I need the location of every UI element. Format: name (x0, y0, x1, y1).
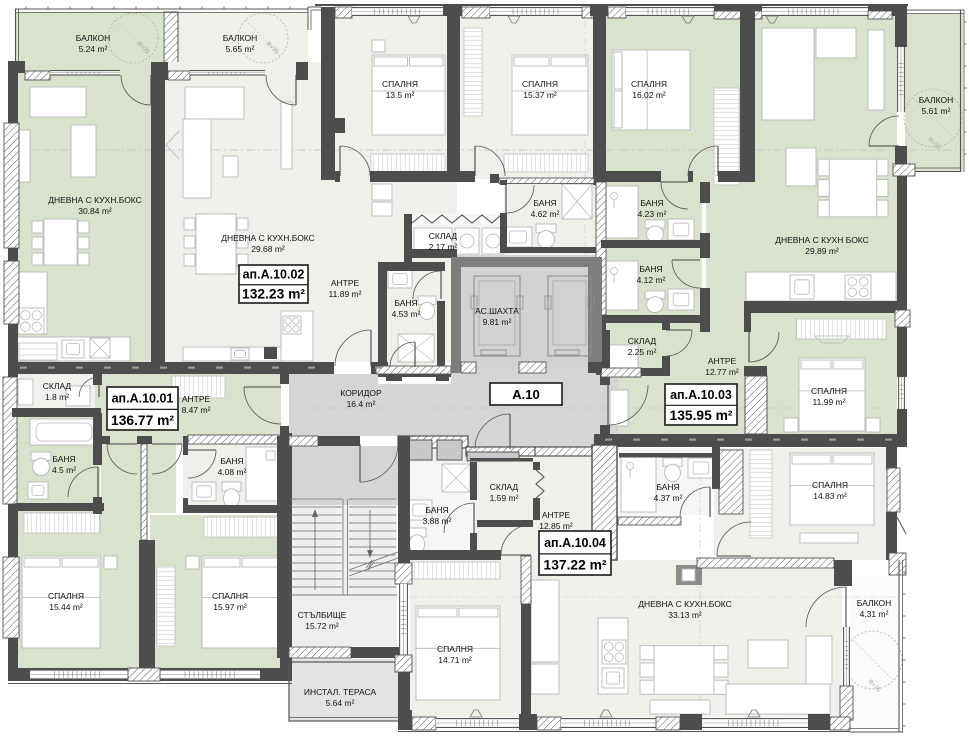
svg-text:АНТРЕ: АНТРЕ (331, 278, 360, 288)
svg-text:АНТРЕ: АНТРЕ (542, 510, 571, 520)
svg-text:14.83 m²: 14.83 m² (813, 491, 847, 501)
svg-text:СПАЛНЯ: СПАЛНЯ (48, 591, 84, 601)
svg-text:БАНЯ: БАНЯ (394, 298, 417, 308)
svg-text:4.5 m²: 4.5 m² (52, 465, 76, 475)
svg-text:ДНЕВНА С КУХН БОКС: ДНЕВНА С КУХН БОКС (775, 235, 869, 245)
svg-text:СПАЛНЯ: СПАЛНЯ (811, 386, 847, 396)
svg-text:132.23 m²: 132.23 m² (242, 286, 305, 301)
svg-text:15.37 m²: 15.37 m² (523, 90, 557, 100)
svg-text:БАНЯ: БАНЯ (656, 482, 679, 492)
svg-text:СПАЛНЯ: СПАЛНЯ (212, 591, 248, 601)
svg-text:33.13 m²: 33.13 m² (668, 610, 702, 620)
svg-text:15.44 m²: 15.44 m² (49, 602, 83, 612)
svg-text:4.37 m²: 4.37 m² (654, 493, 683, 503)
svg-text:15.97 m²: 15.97 m² (213, 602, 247, 612)
svg-text:5.65 m²: 5.65 m² (226, 44, 255, 54)
svg-text:16.02 m²: 16.02 m² (632, 90, 666, 100)
svg-text:СПАЛНЯ: СПАЛНЯ (382, 79, 418, 89)
svg-text:СТЪЛБИЩЕ: СТЪЛБИЩЕ (298, 610, 347, 620)
svg-text:СКЛАД: СКЛАД (490, 482, 519, 492)
svg-text:А.10: А.10 (512, 387, 539, 402)
svg-text:СПАЛНЯ: СПАЛНЯ (631, 79, 667, 89)
svg-text:5.24 m²: 5.24 m² (79, 44, 108, 54)
svg-text:БАЛКОН: БАЛКОН (919, 95, 953, 105)
svg-text:9.81 m²: 9.81 m² (483, 317, 512, 327)
svg-text:БАЛКОН: БАЛКОН (857, 598, 891, 608)
svg-text:БАНЯ: БАНЯ (220, 456, 243, 466)
svg-text:СКЛАД: СКЛАД (429, 231, 458, 241)
svg-text:БАНЯ: БАНЯ (52, 454, 75, 464)
svg-text:СКЛАД: СКЛАД (628, 336, 657, 346)
svg-text:5.61 m²: 5.61 m² (922, 106, 951, 116)
svg-text:АНТРЕ: АНТРЕ (708, 356, 737, 366)
svg-text:ДНЕВНА С КУХН.БОКС: ДНЕВНА С КУХН.БОКС (221, 233, 315, 243)
svg-text:ДНЕВНА С КУХН.БОКС: ДНЕВНА С КУХН.БОКС (48, 195, 142, 205)
svg-text:30.84 m²: 30.84 m² (78, 206, 112, 216)
svg-text:8.47 m²: 8.47 m² (182, 405, 211, 415)
svg-text:БАНЯ: БАНЯ (425, 505, 448, 515)
svg-text:16.4 m²: 16.4 m² (347, 399, 376, 409)
svg-text:5.64 m²: 5.64 m² (326, 698, 355, 708)
svg-text:АС.ШАХТА: АС.ШАХТА (475, 306, 519, 316)
svg-text:1.8 m²: 1.8 m² (45, 392, 69, 402)
svg-text:ап.А.10.02: ап.А.10.02 (243, 268, 305, 282)
svg-text:12.85 m²: 12.85 m² (539, 521, 573, 531)
svg-text:4.12 m²: 4.12 m² (637, 275, 666, 285)
svg-text:ДНЕВНА С КУХН.БОКС: ДНЕВНА С КУХН.БОКС (638, 599, 732, 609)
svg-text:ап.А.10.01: ап.А.10.01 (112, 391, 174, 405)
svg-text:ап.А.10.04: ап.А.10.04 (544, 536, 606, 550)
svg-text:135.95 m²: 135.95 m² (670, 408, 733, 423)
svg-text:137.22 m²: 137.22 m² (544, 558, 607, 573)
svg-text:11.89 m²: 11.89 m² (329, 289, 362, 299)
svg-text:12.77 m²: 12.77 m² (705, 367, 739, 377)
svg-text:15.72 m²: 15.72 m² (305, 621, 339, 631)
svg-text:СПАЛНЯ: СПАЛНЯ (812, 480, 848, 490)
svg-text:4.23 m²: 4.23 m² (638, 209, 667, 219)
svg-text:1.59 m²: 1.59 m² (490, 493, 519, 503)
svg-text:БАНЯ: БАНЯ (533, 198, 556, 208)
svg-text:3.88 m²: 3.88 m² (423, 516, 452, 526)
svg-text:13.5 m²: 13.5 m² (386, 90, 415, 100)
svg-text:БАЛКОН: БАЛКОН (76, 33, 110, 43)
svg-text:136.77 m²: 136.77 m² (111, 413, 174, 428)
svg-text:2.25 m²: 2.25 m² (628, 347, 657, 357)
svg-text:29.68 m²: 29.68 m² (251, 244, 285, 254)
svg-text:2.17 m²: 2.17 m² (429, 242, 458, 252)
svg-text:4.53 m²: 4.53 m² (392, 309, 421, 319)
svg-text:БАЛКОН: БАЛКОН (223, 33, 257, 43)
svg-text:4.08 m²: 4.08 m² (218, 467, 247, 477)
svg-text:КОРИДОР: КОРИДОР (340, 388, 382, 398)
svg-text:ИНСТАЛ. ТЕРАСА: ИНСТАЛ. ТЕРАСА (304, 687, 377, 697)
svg-text:СКЛАД: СКЛАД (43, 381, 72, 391)
svg-text:БАНЯ: БАНЯ (640, 198, 663, 208)
svg-text:14.71 m²: 14.71 m² (438, 655, 472, 665)
svg-text:АНТРЕ: АНТРЕ (182, 394, 211, 404)
svg-text:ап.А.10.03: ап.А.10.03 (670, 388, 732, 402)
svg-text:4.31 m²: 4.31 m² (860, 609, 889, 619)
svg-text:11.99 m²: 11.99 m² (813, 397, 846, 407)
svg-text:4.62 m²: 4.62 m² (531, 209, 560, 219)
svg-text:29.89 m²: 29.89 m² (805, 246, 839, 256)
svg-text:БАНЯ: БАНЯ (639, 264, 662, 274)
svg-text:СПАЛНЯ: СПАЛНЯ (522, 79, 558, 89)
svg-text:СПАЛНЯ: СПАЛНЯ (437, 644, 473, 654)
